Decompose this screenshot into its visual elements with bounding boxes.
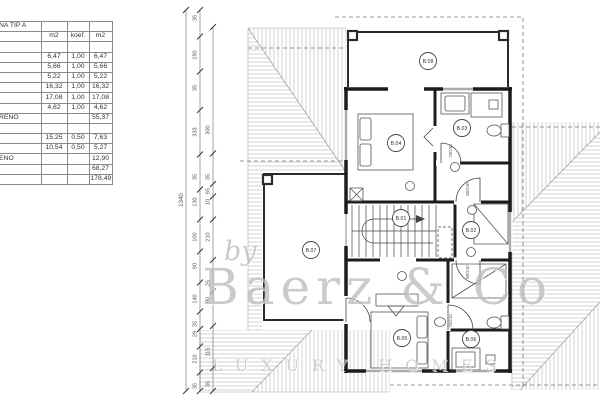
svg-text:210: 210 — [206, 232, 212, 241]
table-cell: 12,90 — [89, 154, 112, 164]
room-label-b08: B.08 — [420, 53, 437, 70]
table-cell — [41, 22, 67, 32]
table-row — [0, 123, 112, 133]
table-cell — [0, 62, 41, 72]
table-cell: m2 — [41, 32, 67, 42]
svg-text:190: 190 — [193, 50, 199, 59]
table-cell — [41, 42, 67, 52]
table-row — [0, 42, 112, 52]
table-cell: 5,66 — [41, 62, 67, 72]
table-row: 16,321,0016,32 — [0, 83, 112, 93]
table-cell: RENO — [0, 113, 41, 123]
table-row: 68,27 — [0, 164, 112, 174]
table-cell — [0, 93, 41, 103]
table-cell — [0, 83, 41, 93]
room-label-b05: B.05 — [394, 330, 411, 347]
svg-text:B.07: B.07 — [306, 248, 317, 254]
table-cell: 7,63 — [89, 134, 112, 144]
table-cell: 178,49 — [89, 174, 112, 184]
table-row: NA TIP A — [0, 22, 112, 32]
table-cell: 1,00 — [67, 52, 89, 62]
table-cell — [0, 52, 41, 62]
table-cell — [41, 164, 67, 174]
svg-text:25: 25 — [206, 280, 212, 286]
svg-text:B.06: B.06 — [466, 337, 477, 343]
svg-text:80/210: 80/210 — [465, 265, 470, 279]
furniture — [350, 93, 509, 370]
table-cell — [0, 72, 41, 82]
svg-text:35: 35 — [193, 174, 199, 180]
table-cell: 15,25 — [41, 134, 67, 144]
svg-text:35: 35 — [206, 381, 212, 387]
table-cell — [0, 123, 41, 133]
table-cell: 68,27 — [89, 164, 112, 174]
table-cell: 17,08 — [41, 93, 67, 103]
svg-text:B.08: B.08 — [423, 59, 434, 65]
table-cell — [67, 164, 89, 174]
table-cell — [0, 164, 41, 174]
table-row: RENO55,37 — [0, 113, 112, 123]
table-cell: 1,00 — [67, 83, 89, 93]
svg-text:B.05: B.05 — [397, 336, 408, 342]
table-cell: 16,32 — [41, 83, 67, 93]
svg-text:B.01: B.01 — [396, 216, 407, 222]
table-row: m2koef.m2 — [0, 32, 112, 42]
area-table-body: NA TIP Am2koef.m26,471,006,475,661,005,6… — [0, 22, 112, 185]
table-cell: 5,22 — [89, 72, 112, 82]
table-cell: ENO — [0, 154, 41, 164]
table-cell — [41, 113, 67, 123]
table-cell — [0, 103, 41, 113]
table-cell — [89, 123, 112, 133]
table-cell: 10,54 — [41, 144, 67, 154]
room-label-b03: B.03 — [454, 120, 471, 137]
table-row: 4,621,004,62 — [0, 103, 112, 113]
table-row: ENO12,90 — [0, 154, 112, 164]
table-cell: 5,27 — [89, 144, 112, 154]
svg-text:35: 35 — [193, 383, 199, 389]
table-row: 178,49 — [0, 174, 112, 184]
table-cell — [41, 154, 67, 164]
svg-text:1340: 1340 — [179, 193, 185, 207]
room-label-b07: B.07 — [303, 242, 320, 259]
table-cell — [0, 42, 41, 52]
table-cell: 5,22 — [41, 72, 67, 82]
table-cell: koef. — [67, 32, 89, 42]
room-label-b04: B.04 — [388, 135, 405, 152]
table-cell: 5,66 — [89, 62, 112, 72]
roof-hatch-right — [512, 122, 600, 390]
area-table: NA TIP Am2koef.m26,471,006,475,661,005,6… — [0, 21, 113, 185]
svg-text:333: 333 — [193, 127, 199, 136]
table-cell: m2 — [89, 32, 112, 42]
table-cell: 6,47 — [41, 52, 67, 62]
table-cell — [0, 32, 41, 42]
svg-text:90: 90 — [206, 297, 212, 303]
svg-text:140: 140 — [193, 294, 199, 303]
table-cell: 17,08 — [89, 93, 112, 103]
table-row: 15,250,507,63 — [0, 134, 112, 144]
table-row: 5,661,005,66 — [0, 62, 112, 72]
svg-text:115: 115 — [206, 348, 212, 357]
table-row: 5,221,005,22 — [0, 72, 112, 82]
table-cell: 4,62 — [89, 103, 112, 113]
table-cell — [67, 22, 89, 32]
table-cell — [67, 42, 89, 52]
table-row: 10,540,505,27 — [0, 144, 112, 154]
table-cell — [67, 174, 89, 184]
room-label-b02: B.02 — [463, 222, 480, 239]
fixture-circles — [398, 163, 477, 281]
table-cell — [67, 123, 89, 133]
table-cell: 0,50 — [67, 144, 89, 154]
table-cell — [89, 42, 112, 52]
table-cell: 0,50 — [67, 134, 89, 144]
svg-text:29: 29 — [193, 331, 199, 337]
floor-plan-sheet: 3519035333351301009014035292103530035651… — [0, 0, 600, 400]
svg-text:300: 300 — [206, 125, 212, 134]
svg-text:90: 90 — [193, 263, 199, 269]
svg-text:B.04: B.04 — [391, 141, 402, 147]
svg-text:35: 35 — [193, 15, 199, 21]
table-cell — [67, 113, 89, 123]
room-label-b01: B.01 — [393, 210, 410, 227]
table-cell: 55,37 — [89, 113, 112, 123]
table-cell: 1,00 — [67, 72, 89, 82]
table-cell — [67, 154, 89, 164]
svg-text:35: 35 — [193, 85, 199, 91]
table-row: 6,471,006,47 — [0, 52, 112, 62]
table-cell — [41, 123, 67, 133]
svg-text:80/210: 80/210 — [465, 182, 470, 196]
svg-text:35: 35 — [193, 321, 199, 327]
svg-text:130: 130 — [193, 197, 199, 206]
table-cell — [0, 134, 41, 144]
svg-text:70/210: 70/210 — [448, 144, 453, 158]
table-cell — [0, 144, 41, 154]
table-cell: 6,47 — [89, 52, 112, 62]
table-cell — [0, 174, 41, 184]
table-cell: 16,32 — [89, 83, 112, 93]
svg-text:35: 35 — [206, 174, 212, 180]
room-label-b06: B.06 — [463, 331, 480, 348]
table-cell: 1,00 — [67, 62, 89, 72]
table-cell: NA TIP A — [0, 22, 41, 32]
svg-text:65: 65 — [206, 188, 212, 194]
svg-text:100: 100 — [193, 232, 199, 241]
table-row: 17,081,0017,08 — [0, 93, 112, 103]
svg-text:10: 10 — [206, 199, 212, 205]
svg-text:B.02: B.02 — [466, 228, 477, 234]
table-cell — [41, 174, 67, 184]
svg-text:70/210: 70/210 — [448, 314, 453, 328]
svg-text:B.03: B.03 — [457, 126, 468, 132]
table-cell: 4,62 — [41, 103, 67, 113]
svg-text:210: 210 — [193, 354, 199, 363]
roof-hatch-bottom-left — [200, 330, 390, 392]
table-cell: 1,00 — [67, 93, 89, 103]
table-cell: 1,00 — [67, 103, 89, 113]
table-cell — [89, 22, 112, 32]
